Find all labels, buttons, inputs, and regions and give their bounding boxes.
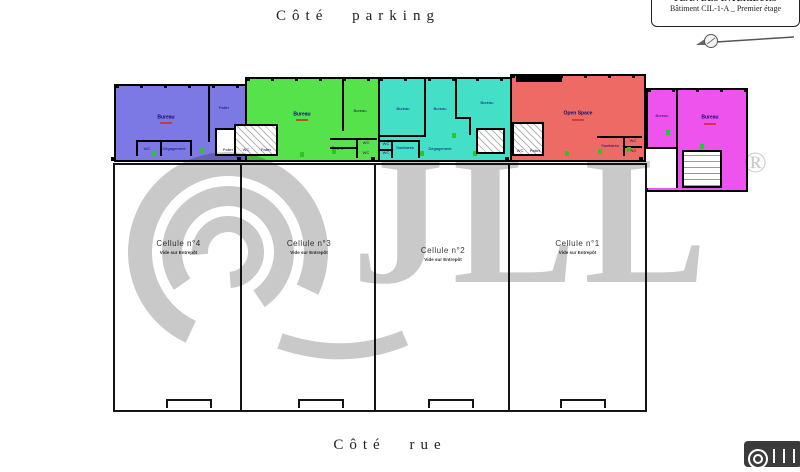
window-ticks [247, 78, 379, 81]
column-dot [111, 157, 115, 161]
room-label-wc: WC [383, 151, 390, 155]
room-label-bureau: Bureau [354, 109, 367, 113]
column-dot [237, 157, 241, 161]
door-mark [200, 148, 204, 153]
cellule-sublabel: Vide sur Entrepôt [115, 250, 242, 255]
room-label-bureau: Bureau [656, 114, 669, 118]
room-label-open-space: Open Space [564, 111, 593, 117]
room-label-sanitaires: Sanitaires [601, 144, 619, 148]
room-label-wc: WC [144, 147, 151, 151]
door-mark [152, 151, 156, 156]
stairwell [234, 124, 278, 156]
room-label-wc: WC [363, 141, 370, 145]
door-mark [332, 149, 336, 154]
door-mark [300, 152, 304, 157]
wall [190, 140, 192, 156]
wall [208, 86, 210, 142]
cellule-3: Cellule n°3 Vide sur Entrepôt [240, 163, 378, 412]
wall [342, 79, 344, 131]
area-text-mark [296, 119, 308, 121]
wall [391, 140, 393, 158]
dock-bump [298, 399, 344, 408]
wall [136, 140, 138, 156]
room-label-degagement: Dégagement [429, 147, 452, 151]
side-label-rue: Côté rue [280, 437, 500, 454]
dock-bump [428, 399, 474, 408]
cellule-label: Cellule n°4 [115, 239, 242, 248]
room-label-bureau: Bureau [157, 115, 174, 121]
room-label-wc: WC [517, 149, 524, 153]
wall [469, 117, 471, 135]
room-label-palier: Palier [223, 148, 233, 152]
zone-pink: Bureau Bureau [646, 88, 748, 192]
room-label-wc: WC [630, 139, 637, 143]
door-mark [627, 147, 631, 152]
cellule-label: Cellule n°2 [376, 246, 510, 255]
cellule-sublabel: Vide sur Entrepôt [376, 257, 510, 262]
wall [330, 138, 377, 140]
wall [516, 75, 562, 82]
room-label-wc: WC [363, 151, 370, 155]
column-dot [505, 157, 509, 161]
cellule-1: Cellule n°1 Vide sur Entrepôt [508, 163, 647, 412]
zone-purple: Bureau Palier WC Dégagement Palier [114, 84, 248, 162]
annex-notch [646, 147, 678, 188]
stairwell [476, 128, 505, 154]
cellule-label: Cellule n°1 [510, 239, 645, 248]
cellule-sublabel: Vide sur Entrepôt [242, 250, 376, 255]
door-mark [420, 151, 424, 156]
room-label-wc: WC [383, 142, 390, 146]
door-mark [565, 151, 569, 156]
wall [455, 79, 457, 117]
column-dot [371, 157, 375, 161]
wall [136, 140, 192, 142]
room-label-palier: Palier [219, 106, 229, 110]
column-dot [639, 157, 643, 161]
cellule-2: Cellule n°2 Vide sur Entrepôt [374, 163, 512, 412]
north-arrow-icon [694, 28, 800, 54]
cellule-label: Cellule n°3 [242, 239, 376, 248]
wall [380, 135, 426, 137]
room-label-bureau: Bureau [293, 112, 310, 118]
cellule-sublabel: Vide sur Entrepôt [510, 250, 645, 255]
room-label-bureau: Bureau [434, 107, 447, 111]
cellule-4: Cellule n°4 Vide sur Entrepôt [113, 163, 244, 412]
title-line2: Bâtiment CIL-1-A _ Premier étage [652, 4, 799, 13]
jll-logo-corner [744, 441, 800, 467]
window-ticks [380, 78, 511, 81]
dock-bump [560, 399, 606, 408]
room-label-bureau: Bureau [481, 101, 494, 105]
title-block: PLAN DES INTERIEURS Bâtiment CIL-1-A _ P… [651, 0, 800, 27]
wall [424, 79, 426, 135]
room-label-wc: WC [243, 148, 250, 152]
room-label-palier: Palier [530, 149, 540, 153]
jll-corner-arcs-icon [744, 441, 800, 467]
side-label-parking: Côté parking [248, 8, 468, 25]
title-line1: PLAN DES INTERIEURS [652, 0, 799, 3]
stairwell [682, 150, 722, 188]
door-mark [666, 130, 670, 135]
door-mark [452, 133, 456, 138]
window-ticks [648, 89, 746, 92]
area-text-mark [704, 123, 716, 125]
area-text-mark [572, 119, 584, 121]
room-label-degagement: Dégagement [163, 147, 186, 151]
door-mark [700, 144, 704, 149]
window-ticks [116, 85, 246, 88]
area-text-mark [160, 122, 172, 124]
room-label-bureau: Bureau [701, 115, 718, 121]
dock-bump [166, 399, 212, 408]
door-mark [598, 149, 602, 154]
floor-plan-page: { "labels": { "parking": "Côté parking",… [0, 0, 800, 461]
room-label-palier: Palier [261, 148, 271, 152]
room-label-bureau: Bureau [397, 107, 410, 111]
wall [676, 90, 678, 147]
room-label-sanitaires: Sanitaires [396, 146, 414, 150]
